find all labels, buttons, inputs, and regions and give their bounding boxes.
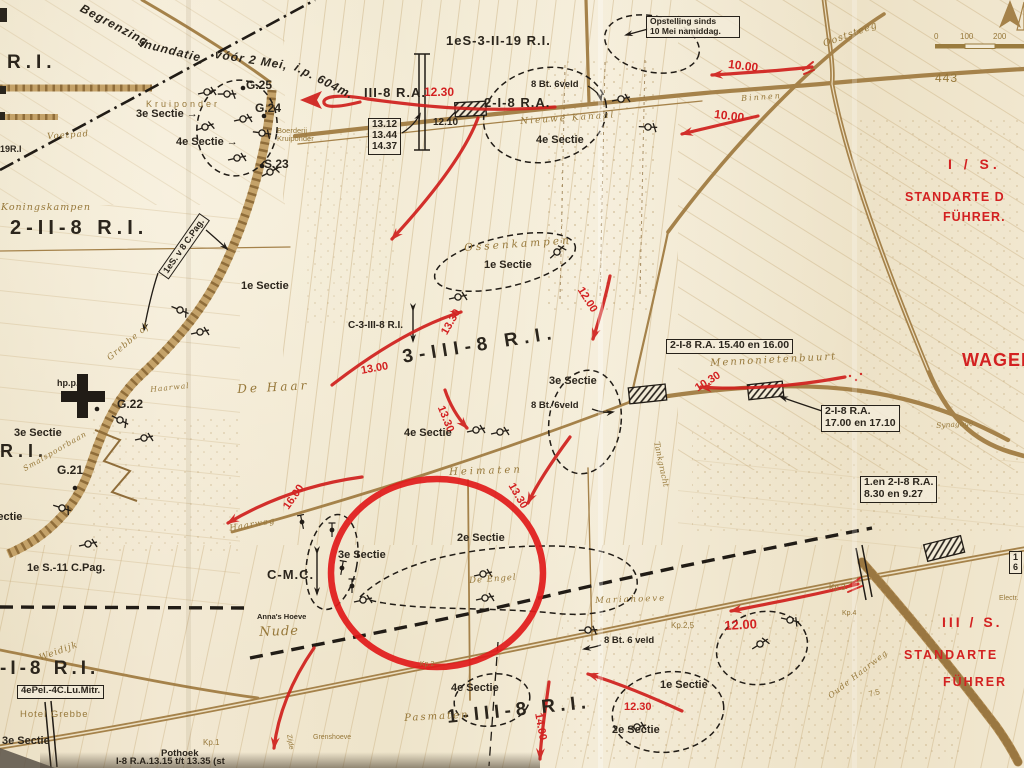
unit-4epel-4clumitr: 4ePel.-4C.Lu.Mitr.	[17, 685, 104, 699]
place-heimaten: Heimaten	[449, 464, 523, 478]
time-1030: 10.30	[693, 369, 723, 394]
map-canvas: Begrenzinginundatie,vóór 2 Mei,i.p. 604m…	[0, 0, 1024, 768]
place-de-haar: De Haar	[237, 379, 310, 396]
inundation-note-4: i.p. 604m.	[292, 61, 356, 102]
unit-i8ra-bottom: I-8 R.A.13.15 t/t 13.35 (st	[116, 757, 225, 768]
place-grebbe: Grebbe of	[106, 323, 152, 364]
place-electr: Electr.	[999, 595, 1018, 603]
unit-iii-8ra: III-8 R.A.	[364, 86, 426, 101]
elevation-75: 7.5	[868, 688, 881, 700]
time-1600: 16.00	[281, 482, 307, 512]
sectie-left-edge: Sectie	[0, 511, 22, 523]
point-g24: G.24	[255, 102, 281, 115]
place-kruiponder: Kruiponder	[146, 99, 220, 109]
sectie-1-ossenkampen: 1e Sectie	[484, 259, 532, 271]
unit-i-s-red: I / S.	[948, 157, 1001, 173]
place-kp4: Kp.4	[842, 610, 856, 618]
place-grenshoeve: Grenshoeve	[313, 734, 351, 742]
place-ossenkampen: Ossenkampen	[464, 235, 572, 254]
times-railway: 13.12 13.44 14.37	[368, 118, 401, 155]
unit-1es-11-cpag: 1e S.-11 C.Pag.	[27, 562, 105, 574]
sectie-4-top: 4e Sectie	[536, 134, 584, 146]
sectie-4-topleft: 4e Sectie →	[176, 136, 238, 148]
place-koningskampen: Koningskampen	[1, 203, 91, 214]
inundation-note-2: inundatie,	[139, 37, 207, 66]
scale-tick-0: 0	[934, 33, 938, 42]
unit-2i8ra-1540: 2-I-8 R.A. 15.40 en 16.00	[666, 339, 793, 354]
sectie-3-mid: 3e Sectie	[549, 375, 597, 387]
unit-fuhrer-1: FÜHRER.	[943, 210, 1006, 224]
place-synagoge: Synagoge	[936, 419, 974, 430]
sectie-4-bottom: 4e Sectie	[451, 682, 499, 694]
unit-8bt6veld-top: 8 Bt. 6veld	[531, 80, 579, 91]
sectie-4-mid: 4e Sectie	[404, 427, 452, 439]
place-annas-hoeve: Anna's Hoeve	[257, 613, 306, 621]
unit-standarte-2: STANDARTE	[904, 648, 998, 662]
unit-1en2i8ra-830: 1.en 2-I-8 R.A. 8.30 en 9.27	[860, 476, 937, 503]
map-annotations: Begrenzinginundatie,vóór 2 Mei,i.p. 604m…	[0, 0, 1024, 768]
elevation-443: 443	[935, 72, 958, 85]
unit-8bt6veld-mid: 8 Bt. 6veld	[531, 401, 579, 412]
place-hotel-grebbe: Hotel Grebbe	[20, 710, 89, 721]
time-1000-b: 10.00	[713, 108, 744, 125]
place-voetpad: Voetpad	[47, 130, 89, 142]
sectie-3-topleft: 3e Sectie →	[136, 108, 198, 120]
place-mennonietenbuurt: Mennonietenbuurt	[710, 351, 837, 369]
place-oude-haarweg: Oude Haarweg	[827, 649, 890, 701]
time-1330-c: 13.30	[505, 481, 529, 511]
place-binnen: Binnen	[741, 92, 782, 104]
time-1210: 12.10	[433, 117, 458, 128]
point-g22: G.22	[117, 398, 143, 411]
place-wageningen: WAGEN	[962, 350, 1024, 370]
place-kp1: Kp.1	[203, 739, 219, 748]
sectie-2-bottom: 2e Sectie	[612, 724, 660, 736]
sectie-3-bottomleft: 3e Sectie	[2, 735, 50, 747]
place-kp25: Kp.2,5	[671, 622, 694, 631]
unit-ri-topleft: R.I.	[7, 52, 57, 73]
time-1200-b: 12.00	[724, 617, 757, 633]
place-nude: Nude	[259, 625, 299, 641]
unit-iii-s-red: III / S.	[942, 615, 1003, 631]
unit-2-i-8ra-top: 2-I-8 R.A.	[484, 96, 550, 111]
unit-2-ii-8ri: 2-II-8 R.I.	[10, 217, 148, 239]
sectie-3-circle: 3e Sectie	[338, 549, 386, 561]
unit-1es-v8-cpag: 1eS. v 8 C.Pag.	[158, 213, 210, 280]
sectie-2-circle: 2e Sectie	[457, 532, 505, 544]
scale-tick-200: 200	[993, 33, 1006, 42]
place-kp3: Kp.3	[829, 584, 845, 593]
time-1300: 13.00	[360, 360, 389, 377]
point-hpp: hp.p.	[57, 378, 79, 388]
place-tankgracht: Tankgracht	[651, 441, 669, 488]
sectie-1-bottom: 1e Sectie	[660, 679, 708, 691]
note-opstelling: Opstelling sinds 10 Mei namiddag.	[646, 16, 740, 38]
time-1230-b: 12.30	[624, 701, 652, 713]
place-nieuwe-kanaal: Nieuwe Kanaal	[520, 110, 616, 127]
sectie-3-left: 3e Sectie	[14, 427, 62, 439]
unit-i-8ri-bottom: -I-8 R.I.	[0, 658, 99, 679]
unit-standarte-1: STANDARTE D	[905, 190, 1005, 204]
unit-1es-3-ii-19ri: 1eS-3-II-19 R.I.	[446, 34, 551, 49]
point-g25: G.25	[246, 79, 272, 92]
time-1000-a: 10.00	[727, 58, 758, 75]
place-boerderij-kruiponder: Boerderij Kruiponder	[277, 127, 314, 144]
unit-19ri: 19R.I	[0, 144, 22, 154]
unit-3-iii-8ri: 3-III-8 R.I.	[401, 323, 559, 368]
unit-c-3-iii-8ri: C-3-III-8 R.I.	[348, 320, 403, 331]
point-s23: S.23	[264, 158, 289, 171]
time-1330-a: 13.30	[439, 307, 463, 337]
place-haarweg-west: Haarweg	[229, 517, 276, 534]
place-de-engel: De Engel	[469, 574, 517, 587]
unit-2i8ra-1700: 2-I-8 R.A. 17.00 en 17.10	[821, 405, 900, 432]
place-haarwal: Haarwal	[150, 382, 190, 394]
place-kp2: Kp.2	[420, 661, 434, 669]
time-1230-top: 12.30	[424, 86, 454, 99]
place-ooststeeg: Ooststeeg	[822, 20, 879, 50]
sectie-1-dehaar: 1e Sectie	[241, 280, 289, 292]
unit-c-mc: C-M.C.	[267, 568, 314, 583]
place-zijde: Zijde	[284, 734, 294, 750]
point-g21: G.21	[57, 464, 83, 477]
unit-8bt6veld-bottom: 8 Bt. 6 veld	[604, 636, 654, 647]
time-1200-a: 12.00	[575, 285, 600, 315]
scale-tick-100: 100	[960, 33, 973, 42]
place-mariahoeve: Mariahoeve	[595, 595, 666, 607]
inundation-note-3: vóór 2 Mei,	[214, 48, 289, 73]
note-box-edge: 1 6	[1009, 551, 1022, 574]
unit-fuhrer-2: FÜHRER	[943, 675, 1007, 689]
